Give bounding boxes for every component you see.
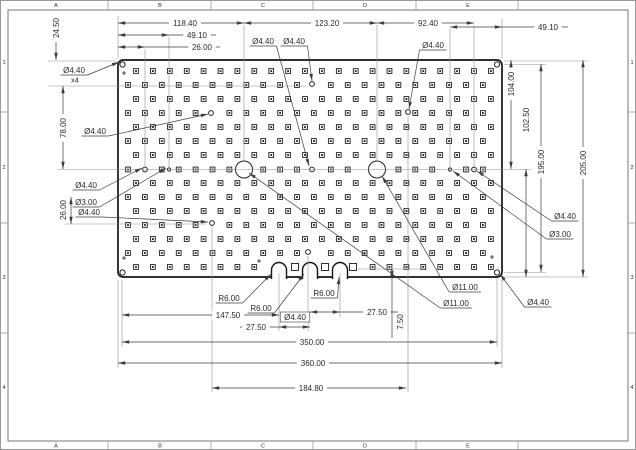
pad-center-dot: [398, 112, 400, 114]
pad-center-dot: [414, 112, 416, 114]
dim-label: 27.50: [367, 308, 388, 317]
pad-center-dot: [338, 182, 340, 184]
pad-center-dot: [439, 126, 441, 128]
pad-center-dot: [364, 196, 366, 198]
pad-center-dot: [439, 70, 441, 72]
pad-center-dot: [465, 196, 467, 198]
pad-center-dot: [287, 210, 289, 212]
pad-center-dot: [287, 126, 289, 128]
pad-center-dot: [389, 98, 391, 100]
pad-center-dot: [270, 210, 272, 212]
pad-center-dot: [439, 210, 441, 212]
pad-center-dot: [245, 112, 247, 114]
pad-center-dot: [203, 238, 205, 240]
corner-hole: [120, 62, 125, 67]
pad-center-dot: [330, 140, 332, 142]
pad-center-dot: [203, 210, 205, 212]
pad-center-dot: [439, 98, 441, 100]
pad-center-dot: [398, 84, 400, 86]
pad-center-dot: [186, 210, 188, 212]
pad-center-dot: [203, 126, 205, 128]
pad-center-dot: [296, 140, 298, 142]
hole: [406, 110, 411, 115]
pad-center-dot: [364, 224, 366, 226]
pad-center-dot: [203, 266, 205, 268]
pad-center-dot: [296, 252, 298, 254]
pad-center-dot: [372, 182, 374, 184]
pad-center-dot: [355, 238, 357, 240]
pad-center-dot: [465, 224, 467, 226]
pad-center-dot: [330, 112, 332, 114]
pad-center-dot: [448, 196, 450, 198]
pad-center-dot: [406, 182, 408, 184]
zone-letter-top: C: [261, 3, 265, 9]
plain-square-pad: [350, 264, 357, 271]
dim-label: 26.00: [192, 43, 213, 52]
pad-center-dot: [152, 98, 154, 100]
pad-center-dot: [229, 224, 231, 226]
leader-label: Ø4.40: [554, 212, 576, 221]
pad-center-dot: [490, 98, 492, 100]
pad-center-dot: [347, 252, 349, 254]
pad-center-dot: [270, 154, 272, 156]
leader-label: Ø4.40: [283, 37, 305, 46]
pad-center-dot: [195, 252, 197, 254]
pad-center-dot: [482, 84, 484, 86]
leader-label: Ø4.40: [75, 181, 97, 190]
corner-hole: [494, 62, 499, 67]
pad-center-dot: [262, 84, 264, 86]
pad-center-dot: [398, 224, 400, 226]
pad-center-dot: [135, 210, 137, 212]
pad-center-dot: [473, 266, 475, 268]
dim-label: 147.50: [216, 311, 241, 320]
zone-number-right: 4: [630, 385, 633, 391]
pad-center-dot: [456, 126, 458, 128]
pad-center-dot: [313, 196, 315, 198]
pad-center-dot: [178, 224, 180, 226]
pad-center-dot: [245, 224, 247, 226]
pad-center-dot: [237, 210, 239, 212]
pad-center-dot: [482, 112, 484, 114]
pad-center-dot: [456, 182, 458, 184]
pad-center-dot: [212, 196, 214, 198]
pad-center-dot: [245, 252, 247, 254]
zone-letter-top: A: [54, 3, 58, 9]
pad-center-dot: [364, 112, 366, 114]
pad-center-dot: [161, 196, 163, 198]
pad-center-dot: [473, 238, 475, 240]
pad-center-dot: [203, 182, 205, 184]
plain-square-pad: [322, 264, 329, 271]
leader-label: R6.00: [250, 304, 272, 313]
pad-center-dot: [161, 224, 163, 226]
zone-letter-top: B: [158, 3, 162, 9]
pad-center-dot: [321, 238, 323, 240]
dim-label: 27.50: [246, 323, 267, 332]
pad-center-dot: [203, 70, 205, 72]
pad-center-dot: [490, 238, 492, 240]
pad-center-dot: [229, 140, 231, 142]
pad-center-dot: [372, 210, 374, 212]
dim-label: 7.50: [396, 314, 405, 330]
pad-center-dot: [422, 182, 424, 184]
pad-center-dot: [161, 112, 163, 114]
pad-center-dot: [347, 84, 349, 86]
corner-hole: [120, 270, 125, 275]
pad-center-dot: [296, 196, 298, 198]
pad-center-dot: [364, 84, 366, 86]
pad-center-dot: [482, 252, 484, 254]
pad-center-dot: [347, 112, 349, 114]
leader-label: Ø11.00: [443, 299, 469, 308]
cad-drawing: AABBCCDDEE11223344118.40123.2092.4049.10…: [0, 0, 636, 450]
pad-center-dot: [178, 112, 180, 114]
pad-center-dot: [135, 98, 137, 100]
zone-number-right: 3: [630, 275, 633, 281]
pad-center-dot: [465, 112, 467, 114]
pad-center-dot: [330, 196, 332, 198]
pad-center-dot: [135, 238, 137, 240]
pad-center-dot: [355, 70, 357, 72]
leader-label: Ø4.40: [527, 298, 549, 307]
zone-letter-top: D: [363, 3, 367, 9]
pad-center-dot: [144, 196, 146, 198]
pad-center-dot: [389, 210, 391, 212]
pad-center-dot: [372, 154, 374, 156]
pad-center-dot: [355, 126, 357, 128]
pad-center-dot: [347, 196, 349, 198]
pad-center-dot: [338, 70, 340, 72]
zone-letter-bottom: B: [158, 443, 162, 449]
pad-center-dot: [220, 238, 222, 240]
pad-center-dot: [465, 84, 467, 86]
pad-center-dot: [287, 238, 289, 240]
hole: [306, 250, 311, 255]
pad-center-dot: [482, 196, 484, 198]
pad-center-dot: [296, 224, 298, 226]
pad-center-dot: [473, 210, 475, 212]
pad-center-dot: [178, 140, 180, 142]
leader-label: Ø11.00: [452, 283, 478, 292]
pad-center-dot: [127, 84, 129, 86]
pad-center-dot: [414, 196, 416, 198]
zone-number-right: 2: [630, 165, 633, 171]
pad-center-dot: [229, 112, 231, 114]
pad-center-dot: [381, 84, 383, 86]
leader-label: Ø3.00: [75, 198, 97, 207]
pad-center-dot: [338, 238, 340, 240]
pad-center-dot: [279, 252, 281, 254]
pad-center-dot: [161, 252, 163, 254]
pad-center-dot: [270, 182, 272, 184]
pad-center-dot: [381, 140, 383, 142]
pad-center-dot: [364, 252, 366, 254]
pad-center-dot: [465, 140, 467, 142]
pad-center-dot: [389, 126, 391, 128]
pad-center-dot: [229, 84, 231, 86]
pad-center-dot: [161, 140, 163, 142]
corner-hole: [494, 270, 499, 275]
pad-center-dot: [321, 182, 323, 184]
pad-center-dot: [262, 224, 264, 226]
pad-center-dot: [431, 224, 433, 226]
dim-label: 24.50: [52, 17, 61, 38]
pad-center-dot: [304, 98, 306, 100]
dim-label: 26.00: [59, 199, 68, 220]
pad-center-dot: [169, 210, 171, 212]
dim-label: 360.00: [301, 359, 326, 368]
zone-letter-top: E: [466, 3, 470, 9]
pad-center-dot: [144, 224, 146, 226]
pad-center-dot: [186, 238, 188, 240]
pad-center-dot: [439, 238, 441, 240]
pad-center-dot: [212, 140, 214, 142]
pad-center-dot: [152, 154, 154, 156]
pad-center-dot: [439, 182, 441, 184]
hole: [209, 111, 214, 116]
pad-center-dot: [296, 112, 298, 114]
pad-center-dot: [490, 154, 492, 156]
pad-center-dot: [490, 70, 492, 72]
pad-center-dot: [220, 182, 222, 184]
pad-center-dot: [237, 182, 239, 184]
pad-center-dot: [355, 210, 357, 212]
dim-label: 78.00: [59, 117, 68, 138]
pad-center-dot: [456, 98, 458, 100]
pad-center-dot: [270, 98, 272, 100]
pad-center-dot: [262, 112, 264, 114]
pad-center-dot: [406, 266, 408, 268]
pad-center-dot: [389, 238, 391, 240]
leader-label: Ø3.00: [549, 230, 571, 239]
pad-center-dot: [253, 126, 255, 128]
pad-center-dot: [406, 238, 408, 240]
pad-center-dot: [220, 154, 222, 156]
pad-center-dot: [287, 98, 289, 100]
pad-center-dot: [414, 84, 416, 86]
pad-center-dot: [237, 98, 239, 100]
pad-center-dot: [237, 266, 239, 268]
pad-center-dot: [414, 224, 416, 226]
pad-center-dot: [195, 84, 197, 86]
pad-center-dot: [473, 182, 475, 184]
pad-center-dot: [253, 238, 255, 240]
pad-center-dot: [347, 140, 349, 142]
pad-center-dot: [135, 154, 137, 156]
pad-center-dot: [287, 154, 289, 156]
pad-center-dot: [253, 182, 255, 184]
pad-center-dot: [330, 84, 332, 86]
pad-center-dot: [245, 84, 247, 86]
pad-center-dot: [372, 126, 374, 128]
dim-label: 350.00: [300, 338, 325, 347]
pad-center-dot: [490, 266, 492, 268]
pad-center-dot: [490, 182, 492, 184]
pad-center-dot: [127, 252, 129, 254]
leader-label: Ø4.40: [78, 208, 100, 217]
pad-center-dot: [229, 252, 231, 254]
pad-center-dot: [186, 126, 188, 128]
dim-label: 184.80: [299, 384, 324, 393]
pad-center-dot: [355, 154, 357, 156]
pad-center-dot: [195, 196, 197, 198]
zone-number-right: 1: [630, 60, 633, 66]
zone-letter-bottom: D: [363, 443, 367, 449]
pad-center-dot: [152, 182, 154, 184]
pad-center-dot: [490, 126, 492, 128]
pad-center-dot: [135, 182, 137, 184]
dim-label: 104.00: [507, 71, 516, 96]
pad-center-dot: [245, 196, 247, 198]
pad-center-dot: [169, 266, 171, 268]
pad-center-dot: [220, 70, 222, 72]
pad-center-dot: [422, 210, 424, 212]
pad-center-dot: [347, 224, 349, 226]
leader-label-qty: x4: [71, 76, 79, 85]
pad-center-dot: [313, 224, 315, 226]
pad-center-dot: [169, 182, 171, 184]
pad-center-dot: [229, 196, 231, 198]
leader-label: Ø4.40: [63, 66, 85, 75]
pad-center-dot: [406, 154, 408, 156]
pad-center-dot: [414, 140, 416, 142]
pad-center-dot: [482, 140, 484, 142]
pad-center-dot: [482, 224, 484, 226]
pad-center-dot: [245, 140, 247, 142]
pad-center-dot: [456, 70, 458, 72]
leader-label: Ø4.40: [84, 127, 106, 136]
pad-center-dot: [270, 126, 272, 128]
pad-center-dot: [304, 126, 306, 128]
pad-center-dot: [338, 210, 340, 212]
zone-letter-bottom: C: [261, 443, 265, 449]
pad-center-dot: [253, 266, 255, 268]
pad-center-dot: [439, 266, 441, 268]
pad-center-dot: [364, 140, 366, 142]
pad-center-dot: [355, 182, 357, 184]
pad-center-dot: [287, 182, 289, 184]
pad-center-dot: [406, 70, 408, 72]
pad-center-dot: [398, 252, 400, 254]
pad-center-dot: [279, 84, 281, 86]
pad-center-dot: [186, 70, 188, 72]
pad-center-dot: [262, 252, 264, 254]
pad-center-dot: [372, 238, 374, 240]
pad-center-dot: [195, 112, 197, 114]
boxed-label: Ø4.40: [284, 313, 306, 322]
pad-center-dot: [456, 154, 458, 156]
pad-center-dot: [381, 112, 383, 114]
zone-letter-bottom: E: [466, 443, 470, 449]
hole: [310, 82, 315, 87]
leader-label: R6.00: [218, 294, 240, 303]
pad-center-dot: [338, 126, 340, 128]
pad-center-dot: [279, 140, 281, 142]
pad-center-dot: [321, 98, 323, 100]
pad-center-dot: [439, 154, 441, 156]
pad-center-dot: [186, 154, 188, 156]
dim-label: 205.00: [579, 150, 588, 175]
dim-label: 49.10: [187, 31, 208, 40]
pad-center-dot: [389, 70, 391, 72]
dim-label: 123.20: [315, 19, 340, 28]
pad-center-dot: [237, 238, 239, 240]
dim-label: 49.10: [538, 23, 559, 32]
pad-center-dot: [296, 84, 298, 86]
leader-label: R6.00: [313, 289, 335, 298]
pad-center-dot: [220, 210, 222, 212]
pad-center-dot: [135, 266, 137, 268]
pad-center-dot: [406, 98, 408, 100]
pad-center-dot: [262, 196, 264, 198]
pad-center-dot: [287, 70, 289, 72]
pad-center-dot: [448, 252, 450, 254]
pad-center-dot: [144, 252, 146, 254]
zone-number-left: 4: [2, 385, 5, 391]
pad-center-dot: [186, 266, 188, 268]
pad-center-dot: [431, 252, 433, 254]
pad-center-dot: [330, 252, 332, 254]
pad-center-dot: [338, 98, 340, 100]
pad-center-dot: [304, 238, 306, 240]
pad-center-dot: [321, 126, 323, 128]
pad-center-dot: [422, 70, 424, 72]
pad-center-dot: [431, 140, 433, 142]
pad-center-dot: [313, 140, 315, 142]
pad-center-dot: [304, 70, 306, 72]
zone-number-left: 3: [2, 275, 5, 281]
cad-viewport: AABBCCDDEE11223344118.40123.2092.4049.10…: [0, 0, 636, 450]
pad-center-dot: [330, 224, 332, 226]
pad-center-dot: [152, 70, 154, 72]
pad-center-dot: [422, 126, 424, 128]
pad-center-dot: [279, 112, 281, 114]
pad-center-dot: [422, 238, 424, 240]
pad-center-dot: [237, 126, 239, 128]
pad-center-dot: [431, 84, 433, 86]
pad-center-dot: [381, 196, 383, 198]
pad-center-dot: [389, 266, 391, 268]
pad-center-dot: [456, 238, 458, 240]
pad-center-dot: [178, 84, 180, 86]
pad-center-dot: [381, 252, 383, 254]
pad-center-dot: [338, 154, 340, 156]
pad-center-dot: [186, 98, 188, 100]
pad-center-dot: [186, 182, 188, 184]
pad-center-dot: [195, 224, 197, 226]
pad-center-dot: [220, 126, 222, 128]
pad-center-dot: [431, 112, 433, 114]
pad-center-dot: [203, 154, 205, 156]
pad-center-dot: [253, 154, 255, 156]
pad-center-dot: [237, 70, 239, 72]
pad-center-dot: [178, 196, 180, 198]
pad-center-dot: [237, 154, 239, 156]
pad-center-dot: [406, 210, 408, 212]
pad-center-dot: [169, 238, 171, 240]
zone-letter-bottom: A: [54, 443, 58, 449]
pad-center-dot: [398, 196, 400, 198]
pad-center-dot: [195, 140, 197, 142]
pad-center-dot: [414, 252, 416, 254]
pad-center-dot: [135, 70, 137, 72]
pad-center-dot: [381, 224, 383, 226]
pad-center-dot: [456, 210, 458, 212]
pad-center-dot: [152, 238, 154, 240]
zone-number-left: 1: [2, 60, 5, 66]
pad-center-dot: [279, 196, 281, 198]
